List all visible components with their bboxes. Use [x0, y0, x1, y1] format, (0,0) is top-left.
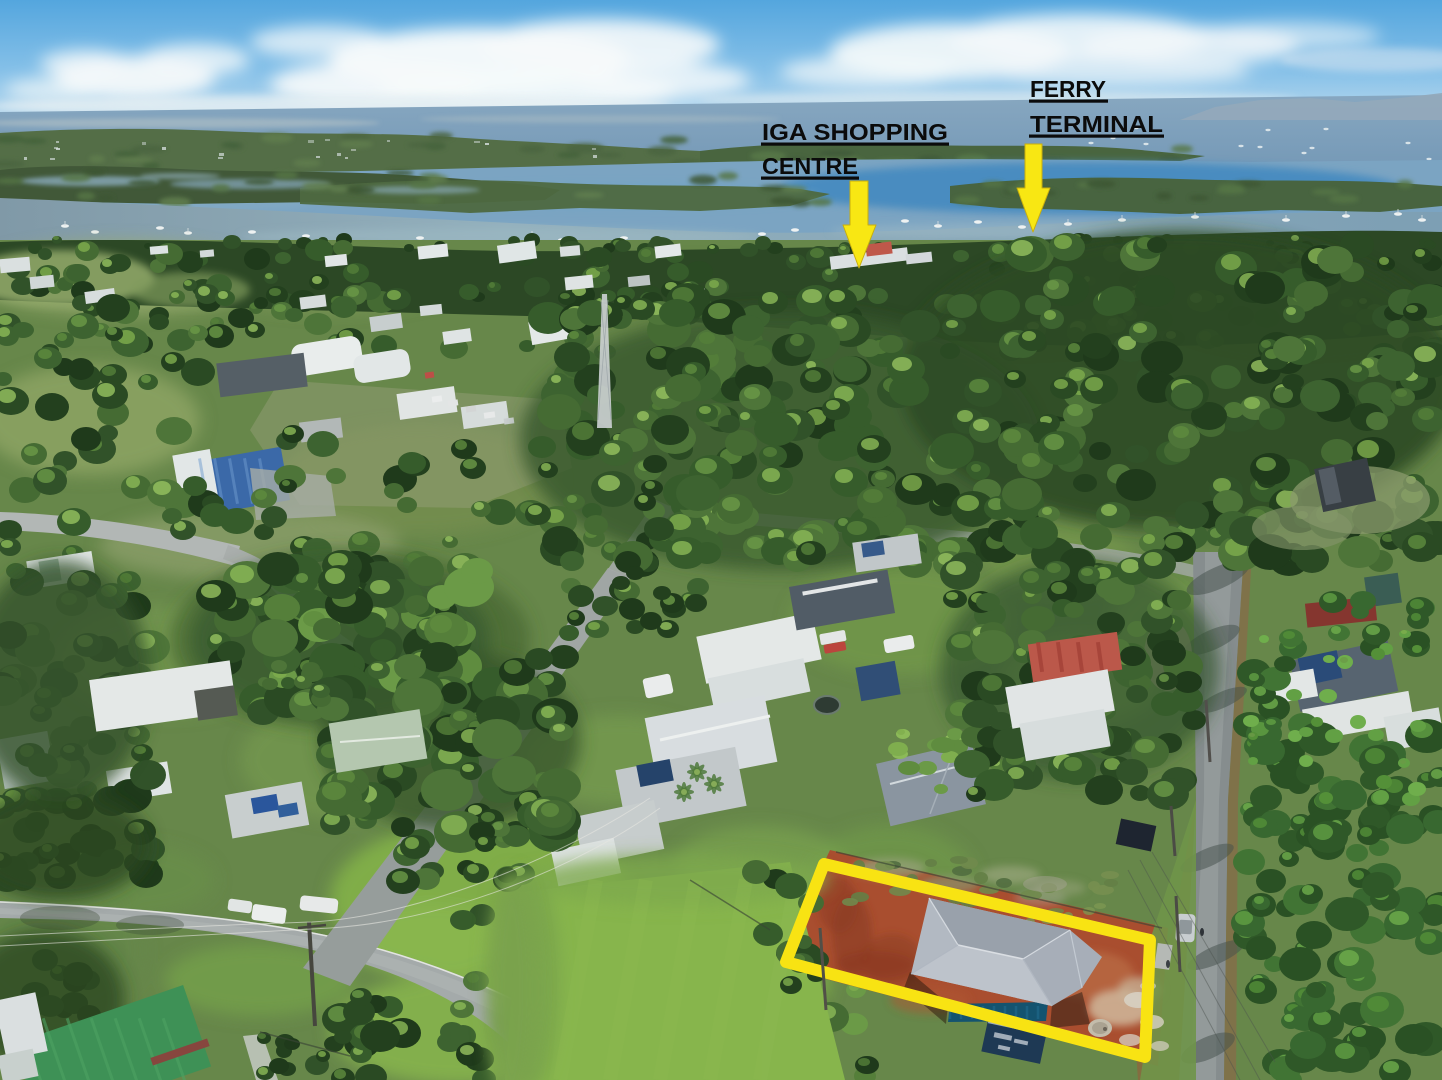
svg-text:FERRY: FERRY: [1030, 76, 1106, 102]
svg-text:CENTRE: CENTRE: [762, 153, 858, 179]
svg-text:IGA SHOPPING: IGA SHOPPING: [762, 119, 948, 145]
svg-text:TERMINAL: TERMINAL: [1030, 111, 1163, 137]
